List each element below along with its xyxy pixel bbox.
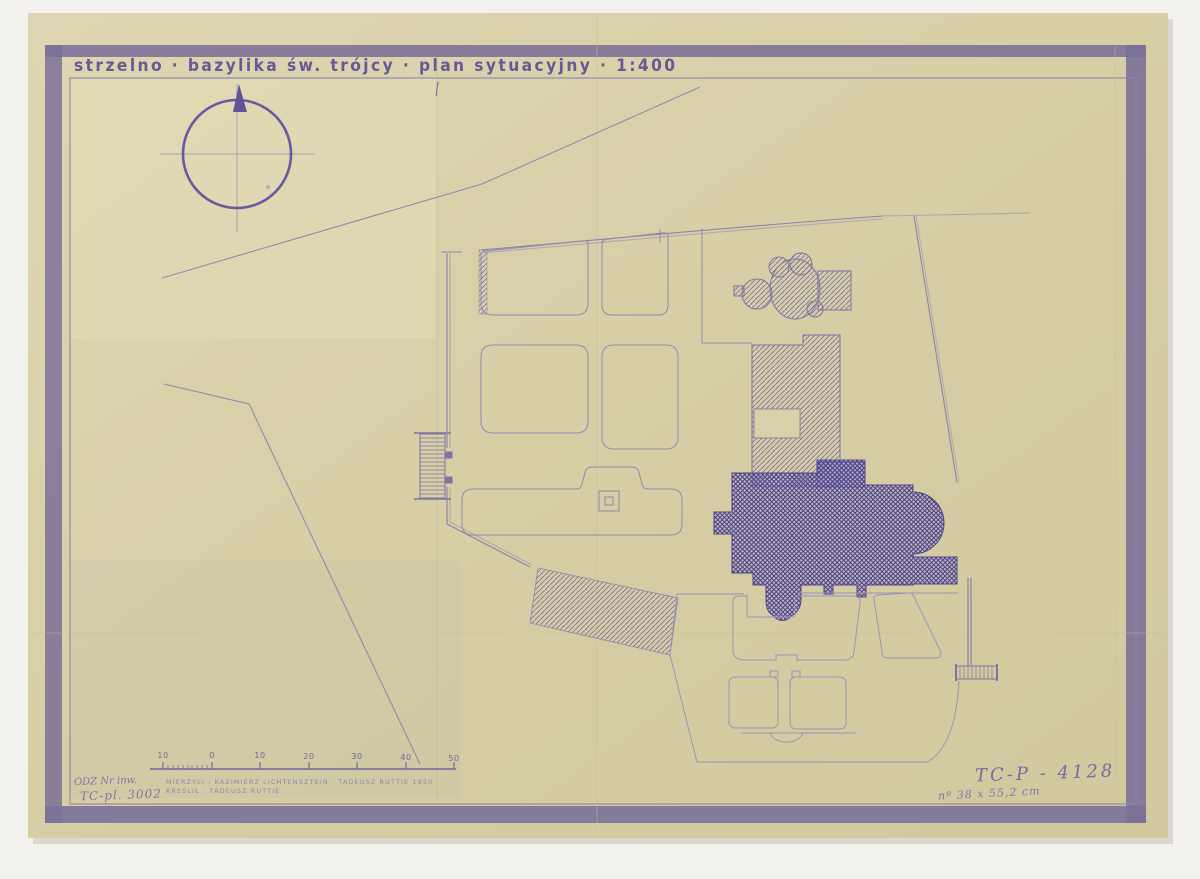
scale-tick-label: 50 bbox=[444, 754, 464, 763]
paper-dark-patch bbox=[71, 560, 461, 798]
entrance-wall-hatch bbox=[479, 250, 487, 314]
scanned-site-plan-sheet: strzelno · bazylika św. trójcy · plan sy… bbox=[0, 0, 1200, 879]
site-plan-drawing bbox=[0, 0, 1200, 879]
credits-draughtsman: KREŚLIŁ : TADEUSZ RUTTIE bbox=[166, 787, 433, 796]
monastery-courtyard bbox=[754, 409, 800, 438]
scale-tick-label: 10 bbox=[153, 751, 173, 760]
scale-tick-label: 40 bbox=[396, 753, 416, 762]
scale-tick-label: 30 bbox=[347, 752, 367, 761]
sheet-title: strzelno · bazylika św. trójcy · plan sy… bbox=[74, 56, 677, 75]
inventory-note-line1: ODZ Nr inw. bbox=[74, 775, 138, 788]
inventory-note-line2: TC-pl. 3002 bbox=[80, 787, 162, 804]
credits-block: MIERZYLI : KAZIMIERZ LICHTENSZTEIN · TAD… bbox=[166, 778, 433, 795]
scale-tick-label: 10 bbox=[250, 751, 270, 760]
scale-tick-label: 20 bbox=[299, 752, 319, 761]
paper-light-patch bbox=[71, 79, 437, 339]
scale-tick-label: 0 bbox=[202, 751, 222, 760]
credits-surveyors: MIERZYLI : KAZIMIERZ LICHTENSZTEIN · TAD… bbox=[166, 778, 433, 787]
